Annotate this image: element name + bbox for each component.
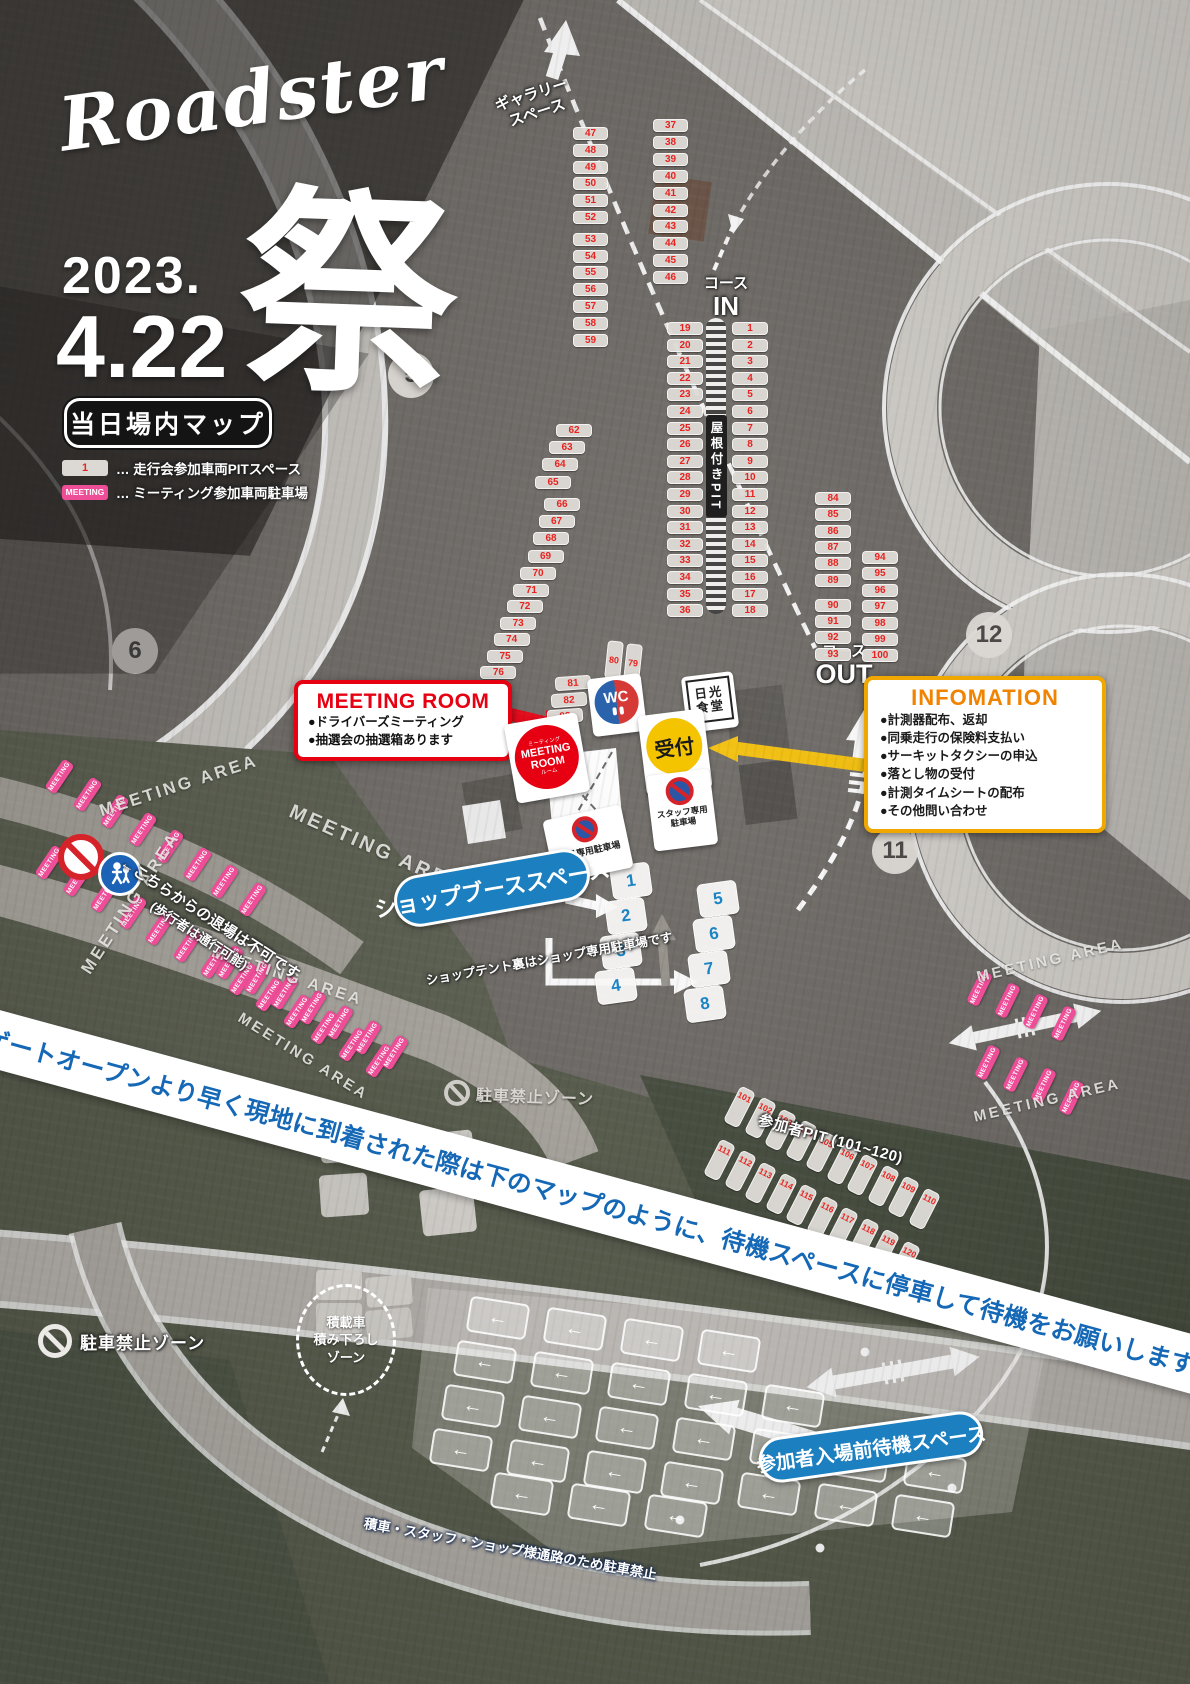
pit-stall-90: 90: [815, 599, 851, 612]
waiting-box: ←: [543, 1307, 608, 1352]
pit-stall-72: 72: [507, 600, 543, 613]
pit-stall-2: 2: [732, 339, 768, 352]
pit-stall-20: 20: [667, 339, 703, 352]
pit-stall-75: 75: [487, 650, 523, 663]
pit-stall-33: 33: [667, 554, 703, 567]
pit-stall-5: 5: [696, 879, 740, 918]
pit-stall-57: 57: [573, 300, 608, 313]
waiting-box: ←: [684, 1373, 749, 1418]
waiting-box: ←: [672, 1417, 737, 1462]
waiting-box: ←: [441, 1384, 506, 1429]
roofed-pit-strip: 屋根付きPIT: [706, 318, 726, 614]
pit-stall-7: 7: [732, 422, 768, 435]
pit-stall-99: 99: [862, 633, 898, 646]
no-parking-zone-bottom: 駐車禁止ゾーン: [38, 1324, 205, 1358]
information-item: ●計測タイムシートの配布: [880, 784, 1090, 802]
pit-stall-17: 17: [732, 588, 768, 601]
pit-stall-32: 32: [667, 538, 703, 551]
exit-restriction-note: ←こちらからの退場は不可です (歩行者は通行可能): [106, 852, 304, 1000]
meeting-room-title: MEETING ROOM: [308, 690, 498, 714]
meeting-tag: MEETING: [127, 811, 157, 847]
information-items: ●計測器配布、返却●同乗走行の保険料支払い●サーキットタクシーの申込●落とし物の…: [880, 711, 1090, 820]
information-item: ●同乗走行の保険料支払い: [880, 729, 1090, 747]
pit-stall-25: 25: [667, 422, 703, 435]
brand-kanji-logo: 祭: [235, 114, 464, 437]
corner-badge-6: 6: [112, 628, 158, 674]
pit-stall-89: 89: [815, 574, 851, 587]
pit-stall-16: 16: [732, 571, 768, 584]
pit-stall-40: 40: [653, 170, 688, 183]
waiting-box: ←: [891, 1494, 956, 1539]
waiting-box: ←: [607, 1362, 672, 1407]
meeting-room-infobox: MEETING ROOM ●ドライバーズミーティング ●抽選会の抽選箱あります: [294, 680, 512, 761]
meeting-room-badge-circle: ミーティング MEETING ROOM ルーム: [510, 720, 584, 794]
reception-circle: 受付: [643, 715, 705, 777]
pit-stall-21: 21: [667, 355, 703, 368]
corner-badge-12: 12: [966, 612, 1012, 658]
pit-stall-94: 94: [862, 551, 898, 564]
gallery-space-label: ギャラリー スペース: [493, 75, 576, 134]
date-day: 4.22: [56, 296, 227, 398]
pit-stall-27: 27: [667, 455, 703, 468]
meeting-tag: MEETING: [209, 863, 239, 899]
pit-stall-54: 54: [573, 250, 608, 263]
legend-meeting-row: MEETING … ミーティング参加車両駐車場: [62, 482, 308, 502]
waiting-box: ←: [761, 1384, 826, 1429]
no-parking-icon: [664, 776, 695, 807]
information-infobox: INFOMATION ●計測器配布、返却●同乗走行の保険料支払い●サーキットタク…: [864, 676, 1106, 833]
pit-stall-96: 96: [862, 584, 898, 597]
waiting-box: ←: [814, 1483, 879, 1528]
pit-stall-74: 74: [494, 633, 530, 646]
pit-stall-43: 43: [653, 220, 688, 233]
pit-stall-71: 71: [513, 584, 549, 597]
pit-stall-93: 93: [815, 648, 851, 661]
pit-stall-44: 44: [653, 237, 688, 250]
pit-stall-100: 100: [862, 649, 898, 662]
pit-stall-10: 10: [732, 471, 768, 484]
pit-stall-87: 87: [815, 541, 851, 554]
no-parking-slash-icon: [444, 1079, 471, 1106]
waiting-box: ←: [518, 1395, 583, 1440]
pit-stall-26: 26: [667, 438, 703, 451]
pit-stall-6: 6: [732, 405, 768, 418]
legend-meeting-chip: MEETING: [62, 485, 108, 500]
pit-stall-39: 39: [653, 153, 688, 166]
pit-stall-84: 84: [815, 492, 851, 505]
waiting-box: ←: [466, 1296, 531, 1341]
pit-stall-15: 15: [732, 554, 768, 567]
pit-stall-19: 19: [667, 322, 703, 335]
pit-stall-47: 47: [573, 127, 608, 140]
pit-stall-7: 7: [687, 949, 731, 988]
waiting-box: ←: [530, 1351, 595, 1396]
pit-stall-9: 9: [732, 455, 768, 468]
pit-stall-58: 58: [573, 317, 608, 330]
pit-stall-1: 1: [732, 322, 768, 335]
information-title: INFOMATION: [880, 685, 1090, 711]
meeting-tag: MEETING: [1022, 993, 1049, 1030]
pit-stall-62: 62: [556, 424, 592, 437]
pit-stall-80: 80: [604, 640, 624, 679]
pit-stall-65: 65: [535, 476, 571, 489]
meeting-tag: MEETING: [1002, 1055, 1029, 1092]
pit-stall-91: 91: [815, 615, 851, 628]
pit-stall-98: 98: [862, 617, 898, 630]
no-parking-slash-icon: [38, 1324, 72, 1358]
pit-stall-63: 63: [549, 441, 585, 454]
pit-stall-49: 49: [573, 161, 608, 174]
pit-stall-24: 24: [667, 405, 703, 418]
pit-stall-38: 38: [653, 136, 688, 149]
pit-stall-22: 22: [667, 372, 703, 385]
pit-stall-8: 8: [682, 984, 726, 1023]
pit-stall-92: 92: [815, 631, 851, 644]
pit-stall-14: 14: [732, 538, 768, 551]
meeting-tag: MEETING: [182, 846, 212, 882]
pit-stall-73: 73: [500, 617, 536, 630]
information-item: ●計測器配布、返却: [880, 711, 1090, 729]
pit-stall-37: 37: [653, 119, 688, 132]
pit-stall-30: 30: [667, 505, 703, 518]
pit-stall-81: 81: [555, 675, 592, 691]
pit-stall-5: 5: [732, 388, 768, 401]
pit-stall-66: 66: [544, 498, 580, 511]
pit-stall-4: 4: [594, 966, 638, 1005]
pit-stall-68: 68: [533, 532, 569, 545]
pit-stall-31: 31: [667, 521, 703, 534]
meeting-tag: MEETING: [237, 881, 267, 917]
legend-pit-chip: 1: [62, 460, 108, 476]
waiting-box: ←: [429, 1428, 494, 1473]
pit-stall-86: 86: [815, 525, 851, 538]
pit-stall-82: 82: [551, 691, 588, 707]
pit-stall-13: 13: [732, 521, 768, 534]
pit-stall-46: 46: [653, 271, 688, 284]
pit-stall-34: 34: [667, 571, 703, 584]
loading-zone-circle: 積載車 積み下ろし ゾーン: [296, 1284, 396, 1396]
staff-parking-label: スタッフ専用 駐車場: [650, 803, 716, 831]
meeting-tag: MEETING: [44, 758, 74, 794]
roofed-pit-label: 屋根付きPIT: [706, 415, 727, 517]
pit-stall-35: 35: [667, 588, 703, 601]
pit-stall-64: 64: [542, 458, 578, 471]
meeting-tag: MEETING: [974, 1044, 1001, 1081]
pit-stall-55: 55: [573, 266, 608, 279]
waiting-box: ←: [595, 1406, 660, 1451]
course-in-label: コース IN: [694, 272, 758, 319]
no-parking-zone-mid: 駐車禁止ゾーン: [444, 1079, 595, 1110]
information-item: ●その他問い合わせ: [880, 802, 1090, 820]
pit-stall-41: 41: [653, 187, 688, 200]
pit-stall-3: 3: [732, 355, 768, 368]
information-item: ●サーキットタクシーの申込: [880, 747, 1090, 765]
meeting-tag: MEETING: [1050, 1004, 1077, 1041]
pit-stall-69: 69: [528, 550, 564, 563]
pit-stall-48: 48: [573, 144, 608, 157]
pit-stall-88: 88: [815, 557, 851, 570]
pit-stall-18: 18: [732, 604, 768, 617]
pit-stall-11: 11: [732, 488, 768, 501]
event-map-poster: 屋根付きPIT ギャラリー スペース コース IN コース OUT 561211…: [0, 0, 1190, 1684]
pit-stall-4: 4: [732, 372, 768, 385]
pit-stall-8: 8: [732, 438, 768, 451]
meeting-area-text: MEETING AREA: [975, 935, 1125, 985]
pit-stall-95: 95: [862, 567, 898, 580]
no-parking-icon: [569, 814, 600, 845]
pit-stall-12: 12: [732, 505, 768, 518]
meeting-tag: MEETING: [994, 981, 1021, 1018]
pit-stall-6: 6: [691, 914, 735, 953]
waiting-box: ←: [453, 1340, 518, 1385]
information-item: ●落とし物の受付: [880, 765, 1090, 783]
pit-stall-70: 70: [520, 567, 556, 580]
pit-stall-42: 42: [653, 204, 688, 217]
pit-stall-50: 50: [573, 177, 608, 190]
meeting-room-badge: ミーティング MEETING ROOM ルーム: [504, 712, 591, 804]
pit-stall-45: 45: [653, 254, 688, 267]
pit-stall-28: 28: [667, 471, 703, 484]
pit-stall-76: 76: [480, 666, 516, 679]
pit-stall-59: 59: [573, 334, 608, 347]
waiting-box: ←: [620, 1318, 685, 1363]
meeting-area-text: MEETING AREA: [97, 751, 261, 821]
waiting-box: ←: [697, 1329, 762, 1374]
legend-pit-row: 1 … 走行会参加車両PITスペース: [62, 458, 301, 478]
pit-stall-67: 67: [539, 515, 575, 528]
pit-stall-56: 56: [573, 283, 608, 296]
corner-badge-11: 11: [872, 828, 918, 874]
wc-icon: WC: [592, 678, 641, 727]
pit-stall-97: 97: [862, 600, 898, 613]
pit-stall-53: 53: [573, 233, 608, 246]
staff-parking-card: スタッフ専用 駐車場: [646, 768, 719, 851]
pit-stall-2: 2: [604, 896, 648, 935]
pit-stall-23: 23: [667, 388, 703, 401]
map-title-plate: 当日場内マップ: [64, 398, 272, 448]
pit-stall-29: 29: [667, 488, 703, 501]
restroom-people-icon: [612, 706, 624, 715]
pit-stall-85: 85: [815, 508, 851, 521]
pit-stall-36: 36: [667, 604, 703, 617]
pit-stall-51: 51: [573, 194, 608, 207]
pit-stall-52: 52: [573, 211, 608, 224]
